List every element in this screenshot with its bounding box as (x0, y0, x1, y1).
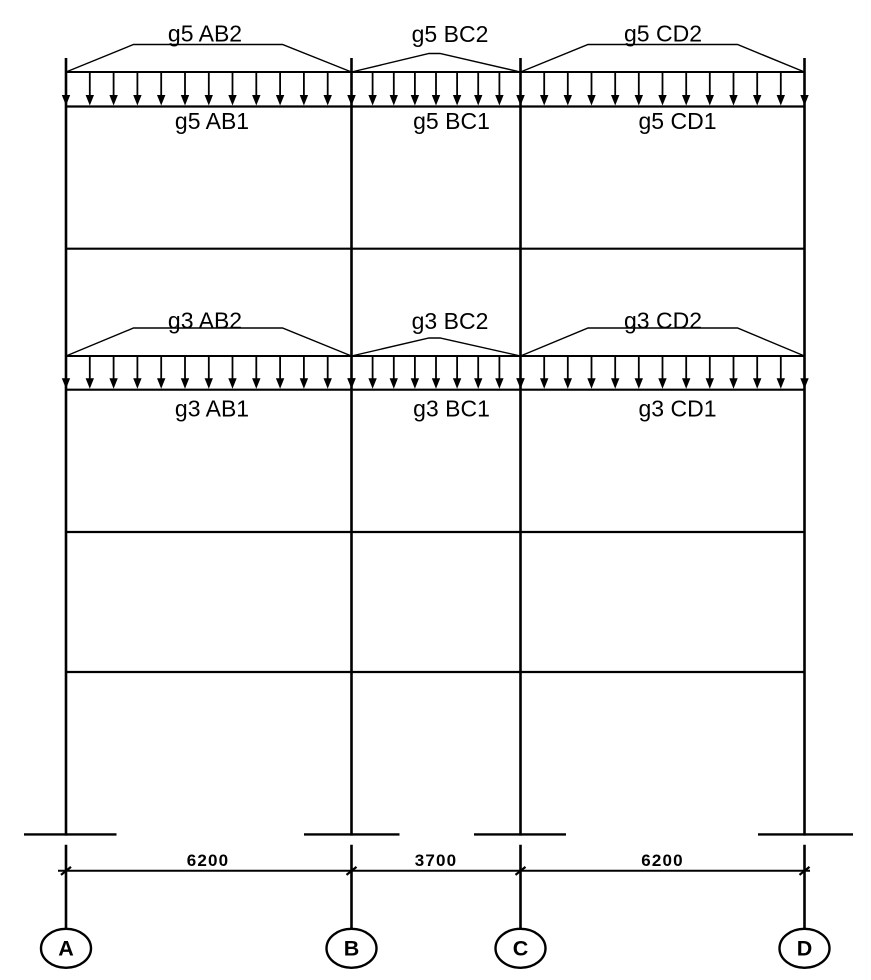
svg-text:g5 AB1: g5 AB1 (175, 108, 249, 134)
svg-text:3700: 3700 (415, 851, 458, 870)
svg-text:g3 BC2: g3 BC2 (412, 308, 489, 334)
svg-text:g3 CD1: g3 CD1 (639, 396, 717, 422)
svg-text:A: A (58, 936, 74, 960)
svg-text:g5 CD1: g5 CD1 (639, 108, 717, 134)
svg-text:D: D (797, 936, 813, 960)
svg-text:g3 AB1: g3 AB1 (175, 396, 249, 422)
svg-text:g5 AB2: g5 AB2 (168, 21, 242, 47)
svg-text:g3 CD2: g3 CD2 (624, 308, 702, 334)
svg-text:6200: 6200 (641, 851, 684, 870)
svg-text:g3 AB2: g3 AB2 (168, 308, 242, 334)
svg-text:g5 BC2: g5 BC2 (412, 21, 489, 47)
svg-text:C: C (513, 936, 529, 960)
svg-text:g3 BC1: g3 BC1 (413, 396, 490, 422)
svg-text:6200: 6200 (187, 851, 230, 870)
svg-text:g5 CD2: g5 CD2 (624, 21, 702, 47)
svg-text:g5 BC1: g5 BC1 (413, 108, 490, 134)
svg-text:B: B (344, 936, 360, 960)
